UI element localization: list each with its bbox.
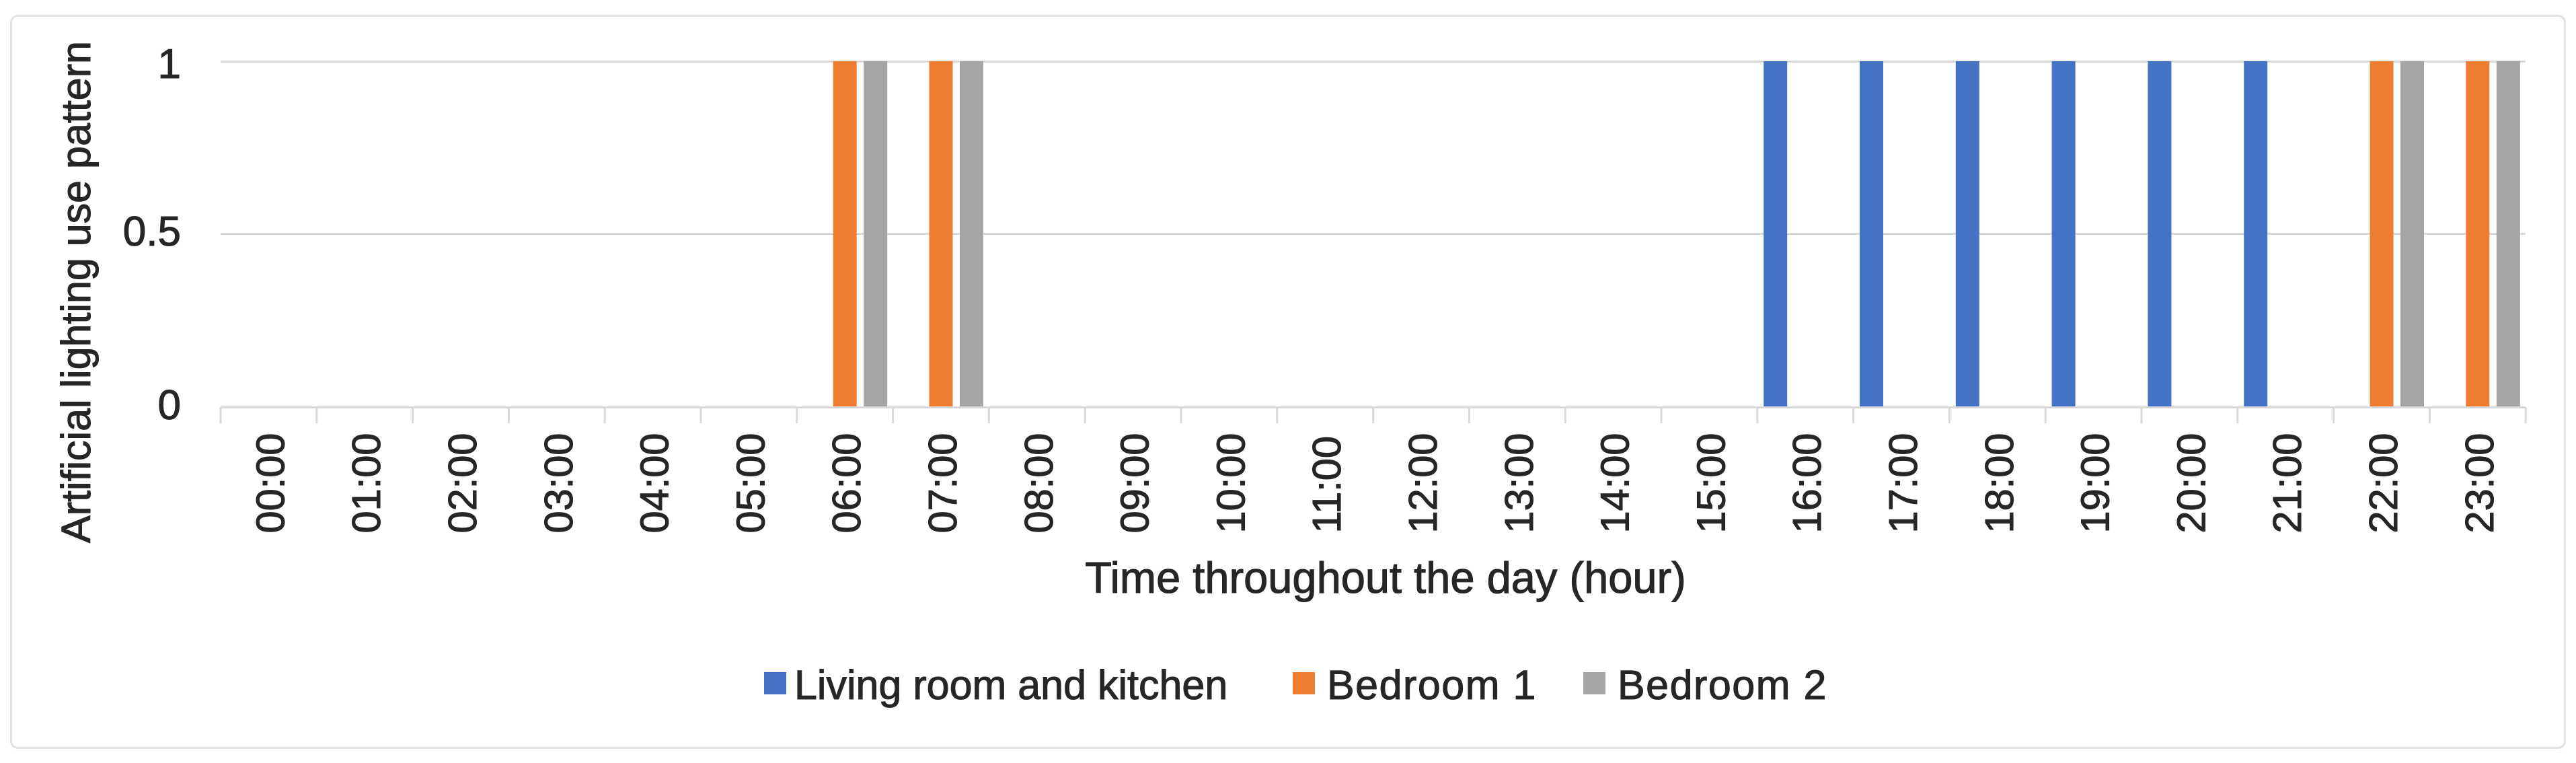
svg-text:15:00: 15:00	[1688, 433, 1733, 534]
svg-text:0: 0	[158, 382, 181, 429]
svg-text:00:00: 00:00	[248, 433, 293, 534]
svg-text:23:00: 23:00	[2457, 433, 2502, 534]
svg-text:06:00: 06:00	[824, 433, 869, 534]
svg-text:20:00: 20:00	[2168, 433, 2213, 534]
svg-text:11:00: 11:00	[1304, 436, 1349, 533]
svg-text:0.5: 0.5	[123, 209, 181, 255]
svg-text:19:00: 19:00	[2073, 433, 2118, 534]
svg-text:10:00: 10:00	[1208, 433, 1253, 534]
svg-text:Living room and kitchen: Living room and kitchen	[794, 662, 1227, 708]
svg-text:1: 1	[158, 41, 181, 87]
svg-text:02:00: 02:00	[440, 433, 485, 534]
svg-text:16:00: 16:00	[1784, 433, 1829, 534]
svg-text:09:00: 09:00	[1112, 433, 1158, 534]
svg-text:13:00: 13:00	[1497, 433, 1542, 534]
svg-text:04:00: 04:00	[632, 433, 677, 534]
svg-text:18:00: 18:00	[1977, 433, 2022, 534]
svg-text:03:00: 03:00	[536, 433, 581, 534]
svg-text:08:00: 08:00	[1016, 433, 1061, 534]
svg-text:22:00: 22:00	[2361, 433, 2406, 534]
svg-text:Bedroom 2: Bedroom 2	[1618, 662, 1827, 708]
svg-text:Bedroom 1: Bedroom 1	[1327, 662, 1537, 708]
svg-text:01:00: 01:00	[344, 433, 389, 534]
svg-text:07:00: 07:00	[920, 433, 965, 534]
svg-text:Time throughout the day (hour): Time throughout the day (hour)	[1085, 553, 1686, 602]
svg-text:14:00: 14:00	[1593, 433, 1638, 534]
svg-text:17:00: 17:00	[1881, 433, 1926, 534]
svg-text:12:00: 12:00	[1400, 433, 1445, 534]
svg-text:05:00: 05:00	[728, 433, 773, 534]
svg-text:Artificial lighting use patter: Artificial lighting use pattern	[53, 41, 99, 543]
svg-text:21:00: 21:00	[2265, 433, 2310, 534]
